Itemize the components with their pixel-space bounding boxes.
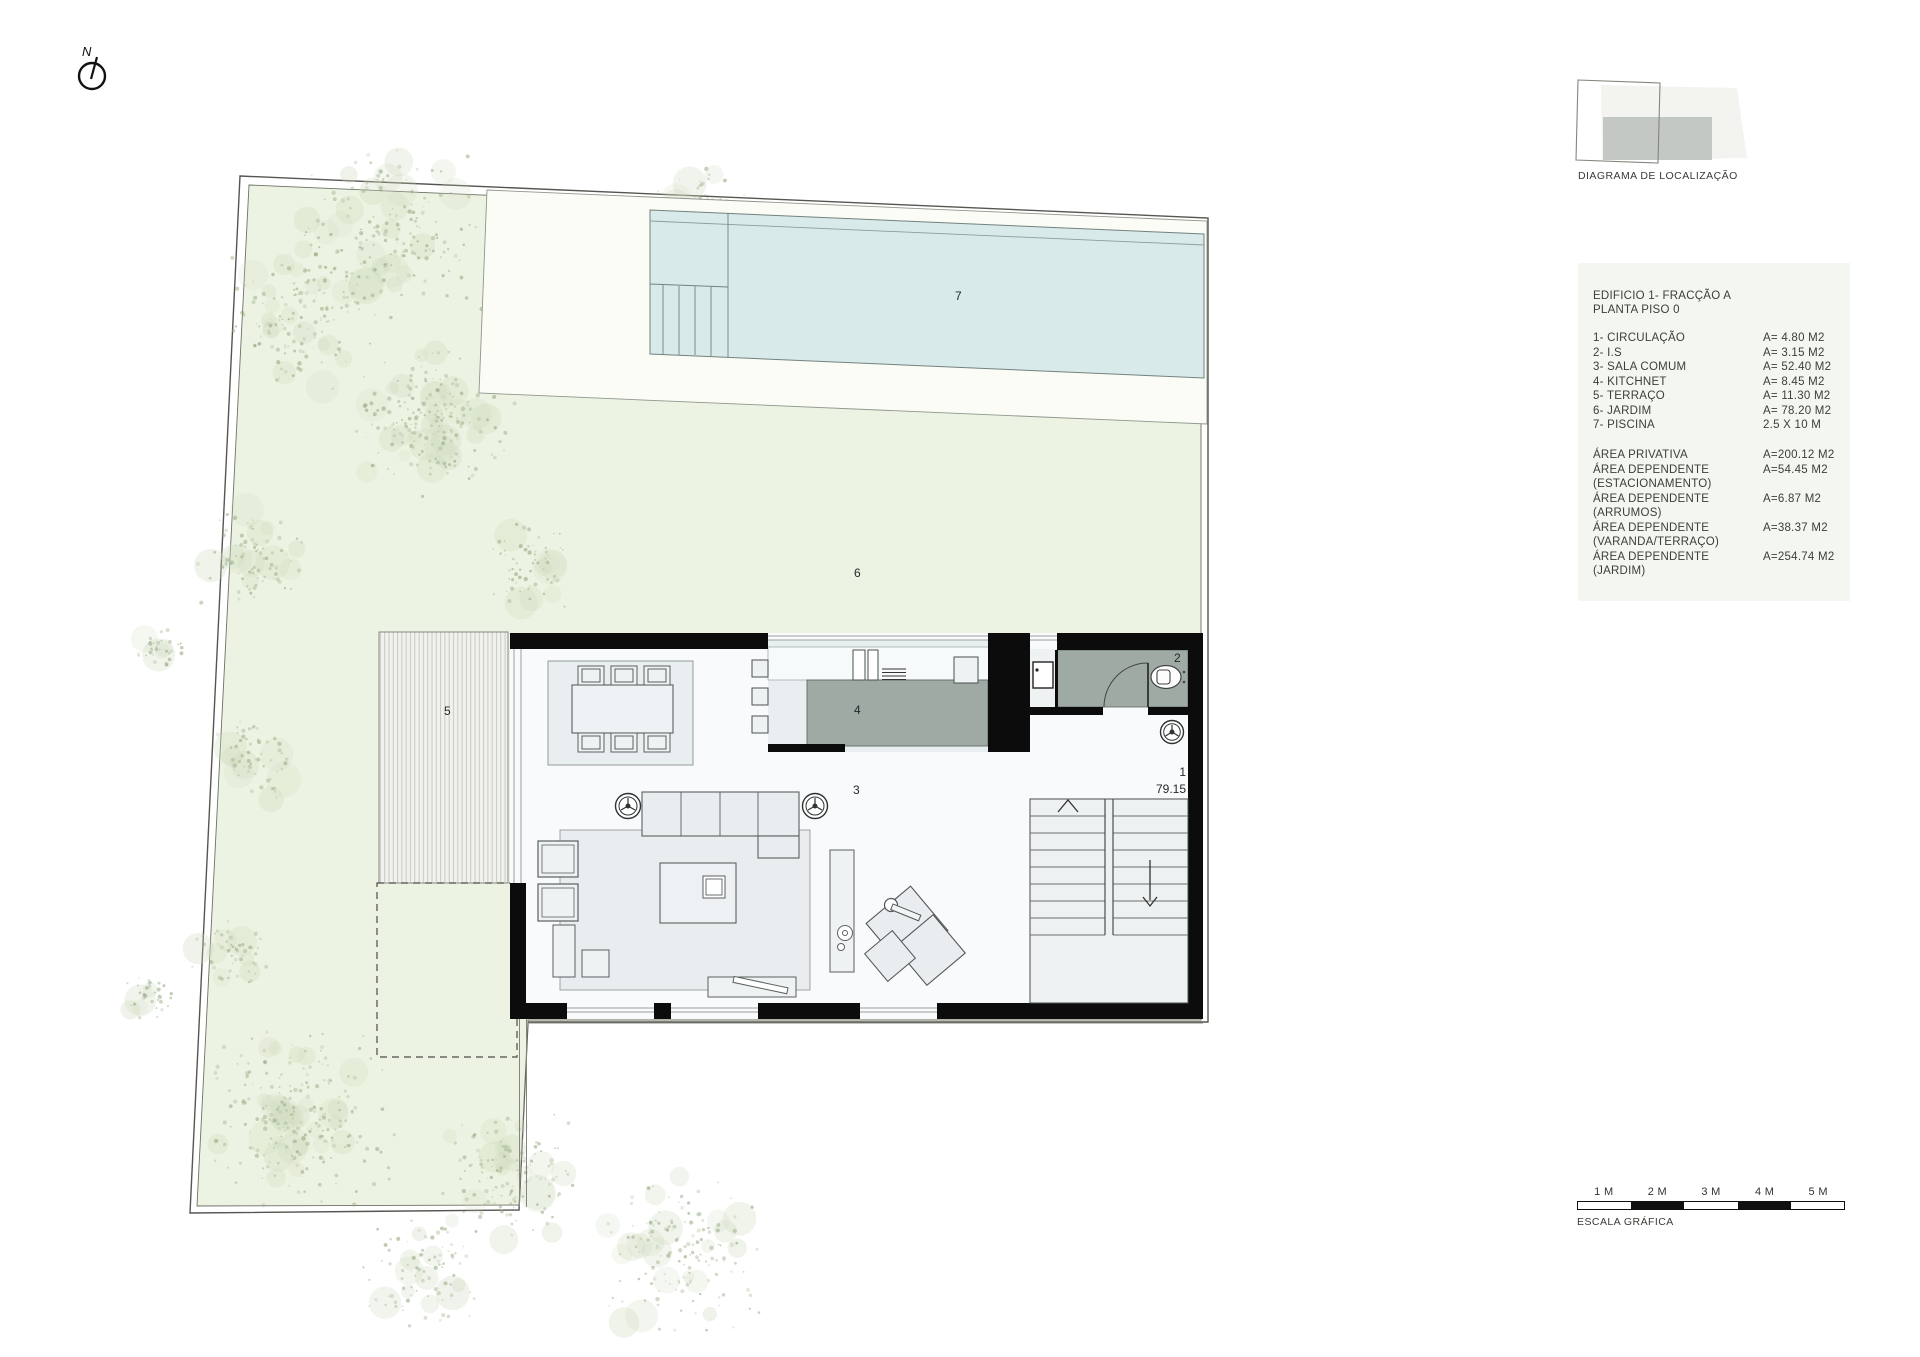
kitchen-island <box>807 680 988 746</box>
kitchen-sink-drainer <box>868 650 878 680</box>
bathroom-number-label: 2 <box>1174 651 1181 665</box>
legend-title-line1: EDIFICIO 1- FRACÇÃO A <box>1593 289 1836 303</box>
living-number-label: 3 <box>853 783 860 797</box>
sofa-chaise <box>758 836 799 858</box>
speaker-icon-3 <box>1161 721 1184 744</box>
wall-kitchen-pier <box>988 633 1030 752</box>
pouf <box>582 950 609 977</box>
wall-bottom-1 <box>510 1003 567 1019</box>
circulation-number-label: 1 <box>1179 765 1186 779</box>
wall-right <box>1188 633 1203 1019</box>
legend-area-row: ÁREA DEPENDENTE(JARDIM) A=254.74 M2 <box>1593 550 1836 578</box>
terrace-number-label: 5 <box>444 704 451 718</box>
location-diagram-caption: DIAGRAMA DE LOCALIZAÇÃO <box>1578 170 1738 182</box>
legend-item: 5- TERRAÇOA= 11.30 M2 <box>1593 389 1836 403</box>
scale-tick-labels: 1 M 2 M 3 M 4 M 5 M <box>1577 1186 1845 1198</box>
kitchen-shelf-3 <box>752 716 768 733</box>
dining-set <box>572 666 673 752</box>
toilet <box>1151 666 1181 689</box>
terrace-decking <box>379 632 508 883</box>
wall-entry-bath-partition <box>1055 650 1058 707</box>
floor-plan-sheet: { "north": { "label": "N" }, "location_d… <box>0 0 1920 1357</box>
graphic-scale: 1 M 2 M 3 M 4 M 5 M ESCALA GRÁFICA <box>1577 1186 1845 1228</box>
kitchen-shelf-2 <box>752 688 768 705</box>
door-handle <box>1035 668 1038 671</box>
legend-item: 6- JARDIMA= 78.20 M2 <box>1593 404 1836 418</box>
legend-item: 1- CIRCULAÇÃOA= 4.80 M2 <box>1593 331 1836 345</box>
sideboard <box>830 850 854 972</box>
property-lines <box>520 1019 1204 1207</box>
legend-item: 2- I.SA= 3.15 M2 <box>1593 346 1836 360</box>
location-diagram <box>1576 80 1747 163</box>
north-arrow-needle <box>91 57 97 79</box>
pool-water <box>650 210 1204 378</box>
stairs <box>1030 799 1188 1003</box>
armchair-2 <box>538 884 578 921</box>
kitchen-sink <box>853 650 865 680</box>
wall-top-left <box>510 633 768 649</box>
legend-area-row: ÁREA DEPENDENTE(ESTACIONAMENTO) A=54.45 … <box>1593 463 1836 491</box>
floor-level-label: 79.15 <box>1156 782 1186 796</box>
pool: 7 <box>650 210 1204 378</box>
wall-kitchen-cap <box>768 744 845 752</box>
legend-item: 7- PISCINA2.5 X 10 M <box>1593 418 1836 432</box>
wall-bottom-2 <box>654 1003 671 1019</box>
legend-area-row: ÁREA DEPENDENTE(VARANDA/TERRAÇO) A=38.37… <box>1593 521 1836 549</box>
legend-area-row: ÁREA DEPENDENTE(ARRUMOS) A=6.87 M2 <box>1593 492 1836 520</box>
wall-bathroom-top <box>1057 633 1203 650</box>
north-arrow: N <box>79 44 105 89</box>
legend-areas: ÁREA PRIVATIVA A=200.12 M2 ÁREA DEPENDEN… <box>1593 448 1836 578</box>
speaker-icon-2 <box>803 794 828 819</box>
kitchen-appliance <box>954 657 978 683</box>
scale-bar <box>1577 1201 1845 1210</box>
terrace: 5 <box>379 632 508 883</box>
kitchen-shelf-1 <box>752 660 768 677</box>
entry-door <box>1033 662 1053 688</box>
pool-number-label: 7 <box>955 289 962 303</box>
garden-number-label: 6 <box>854 566 861 580</box>
building: 4 3 <box>510 633 1203 1019</box>
speaker-icon-1 <box>616 794 641 819</box>
wall-bottom-4 <box>937 1003 1203 1019</box>
sofa <box>642 792 799 836</box>
legend-area-row: ÁREA PRIVATIVA A=200.12 M2 <box>1593 448 1836 462</box>
scale-caption: ESCALA GRÁFICA <box>1577 1216 1845 1228</box>
wall-bathroom-bottom-left <box>1030 707 1103 715</box>
armchair-1 <box>538 841 578 877</box>
legend-panel: EDIFICIO 1- FRACÇÃO A PLANTA PISO 0 1- C… <box>1578 263 1850 601</box>
north-letter: N <box>82 44 92 59</box>
legend-item: 3- SALA COMUMA= 52.40 M2 <box>1593 360 1836 374</box>
legend-item: 4- KITCHNETA= 8.45 M2 <box>1593 375 1836 389</box>
kitchen-number-label: 4 <box>854 703 861 717</box>
side-table <box>553 925 575 977</box>
diagram-building <box>1603 117 1712 160</box>
wall-left-bottom <box>510 883 526 1019</box>
legend-title-line2: PLANTA PISO 0 <box>1593 303 1836 317</box>
site-plan: 7 6 5 <box>0 0 1920 1357</box>
legend-title: EDIFICIO 1- FRACÇÃO A PLANTA PISO 0 <box>1593 289 1836 317</box>
wall-bottom-3 <box>758 1003 860 1019</box>
dining-table <box>572 685 673 733</box>
